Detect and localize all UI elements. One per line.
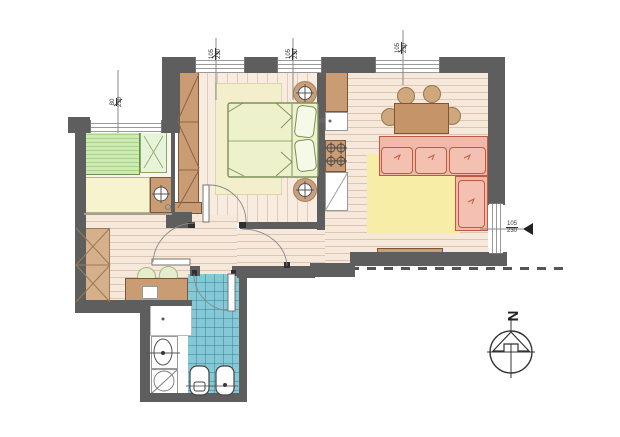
dim-width: 105 (395, 42, 402, 54)
north-compass (487, 318, 535, 378)
bidet-icon (212, 366, 238, 395)
wardrobe-detail (178, 74, 199, 208)
lamp-icon (296, 181, 314, 199)
dim-height: 230 (507, 228, 517, 234)
dim-width: 105 (209, 48, 216, 60)
shower-drain-icon (162, 318, 165, 321)
corridor-door-right (242, 229, 287, 266)
toilet-icon (186, 366, 213, 395)
dim-label-small-room-window: 80 230 (110, 90, 124, 114)
dim-width: 105 (506, 221, 518, 228)
floor-plan-canvas: 80 230 105 230 105 230 105 230 105 230 N (0, 0, 620, 437)
bathroom-door (194, 274, 235, 311)
dim-width: 105 (286, 48, 293, 60)
dim-label-bedroom-window-2: 105 230 (286, 42, 300, 66)
closet-detail (76, 228, 110, 302)
lamp-icon (296, 84, 314, 102)
dim-height: 230 (293, 49, 299, 59)
dim-label-right-window: 105 230 (502, 221, 522, 236)
dim-width: 80 (110, 98, 117, 107)
double-bed (228, 103, 318, 177)
dimension-ticks (114, 45, 407, 106)
detail-overlay (0, 0, 620, 437)
dim-label-bedroom-window-1: 105 230 (209, 42, 223, 66)
dim-label-living-window: 105 230 (395, 36, 409, 60)
dimension-arrow-icon (523, 223, 533, 235)
faucet-icon (319, 118, 332, 123)
dim-height: 230 (216, 49, 222, 59)
dim-height: 230 (402, 43, 408, 53)
lamp-icon (152, 185, 171, 210)
hob-burners-icon (325, 142, 347, 167)
tall-unit-diagonal (325, 172, 348, 211)
north-label: N (503, 306, 521, 326)
sofa-stitch-marks (394, 155, 474, 204)
washing-machine-icon (152, 370, 177, 393)
pillow-fold-lines (144, 136, 163, 168)
corridor-door-left (152, 223, 195, 265)
dimension-lines (118, 30, 523, 229)
bedroom-door (203, 185, 246, 222)
dim-height: 230 (117, 97, 123, 107)
washbasin-icon (146, 339, 180, 365)
